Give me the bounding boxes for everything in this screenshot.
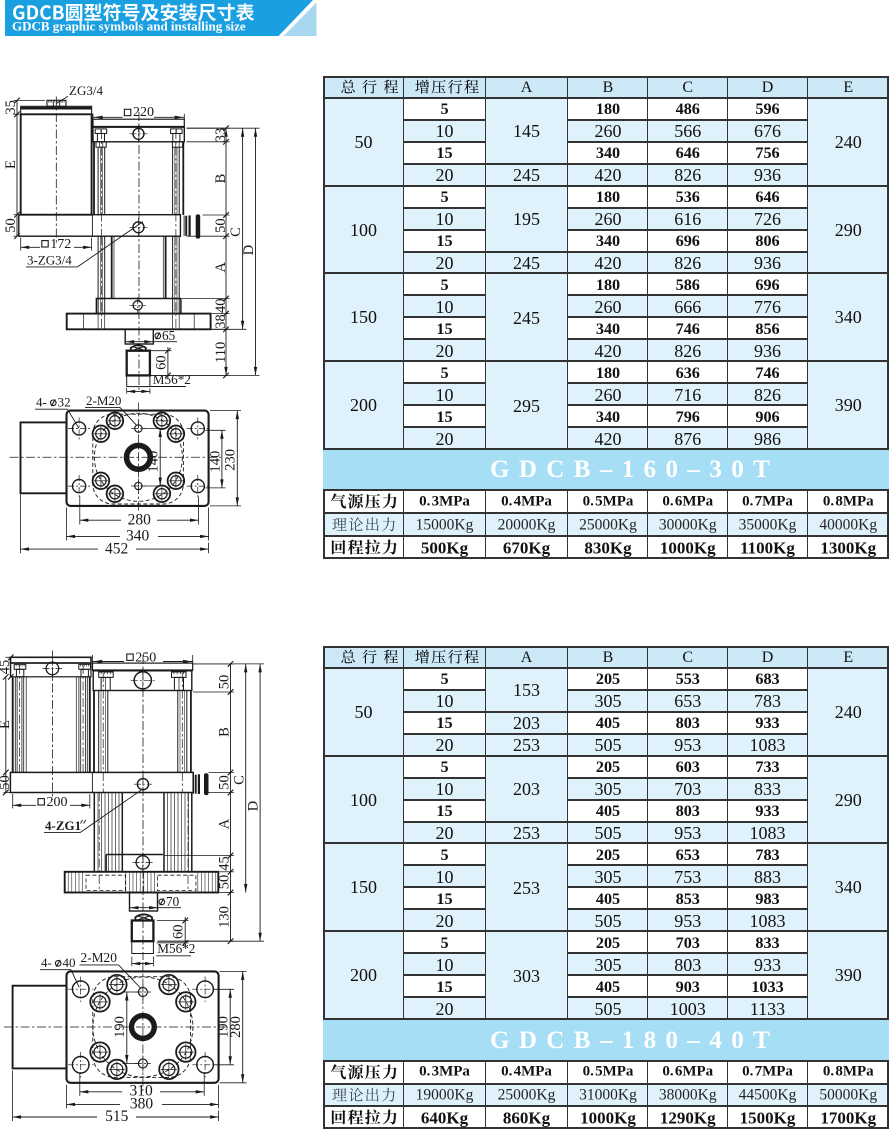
svg-text:E: E	[3, 160, 19, 169]
svg-text:50: 50	[213, 218, 229, 233]
svg-text:ZG3/4: ZG3/4	[69, 83, 103, 98]
svg-text:4-ZG1: 4-ZG1	[45, 818, 81, 833]
svg-text:50: 50	[217, 875, 233, 890]
svg-text:452: 452	[105, 540, 128, 557]
svg-text:230: 230	[223, 449, 239, 471]
svg-text:50: 50	[217, 775, 233, 790]
svg-text:250: 250	[135, 650, 156, 665]
svg-text:200: 200	[47, 795, 68, 810]
svg-text:32: 32	[58, 395, 71, 410]
svg-text:45: 45	[217, 856, 233, 871]
svg-text:3-ZG3/4: 3-ZG3/4	[27, 253, 72, 268]
svg-text:C: C	[228, 227, 244, 237]
svg-text:4-: 4-	[41, 955, 52, 970]
svg-text:M56*2: M56*2	[153, 372, 191, 387]
svg-text:380: 380	[130, 1095, 154, 1112]
svg-text:65: 65	[162, 328, 176, 343]
svg-text:35: 35	[3, 100, 19, 115]
svg-text:60: 60	[171, 925, 187, 940]
svg-text:70: 70	[166, 894, 180, 909]
svg-text:38: 38	[213, 314, 229, 329]
svg-text:130: 130	[217, 906, 233, 928]
svg-text:50: 50	[3, 218, 19, 233]
svg-text:515: 515	[105, 1108, 129, 1125]
svg-text:33: 33	[213, 128, 229, 143]
svg-text:140: 140	[146, 451, 162, 473]
svg-text:280: 280	[128, 511, 152, 528]
svg-text:4-: 4-	[36, 395, 47, 410]
svg-text:220: 220	[133, 105, 154, 120]
svg-text:340: 340	[126, 528, 150, 545]
svg-text:C: C	[231, 775, 247, 785]
svg-text:2-M20: 2-M20	[81, 950, 118, 965]
svg-text:D: D	[246, 801, 262, 811]
svg-text:40: 40	[63, 955, 76, 970]
svg-text:A: A	[217, 818, 233, 829]
svg-text:E: E	[0, 720, 13, 729]
svg-text:A: A	[213, 262, 229, 273]
svg-text:2-M20: 2-M20	[86, 393, 121, 408]
svg-text:45: 45	[0, 660, 13, 675]
svg-text:280: 280	[228, 1016, 244, 1038]
svg-text:40: 40	[213, 299, 229, 314]
svg-text:B: B	[217, 727, 233, 737]
svg-text:B: B	[213, 174, 229, 184]
svg-text:172: 172	[50, 237, 71, 252]
svg-text:D: D	[241, 245, 257, 255]
svg-text:140: 140	[207, 451, 223, 473]
svg-text:190: 190	[112, 1016, 128, 1038]
svg-text:60: 60	[153, 355, 169, 370]
svg-text:50: 50	[0, 775, 13, 790]
svg-text:50: 50	[217, 675, 233, 690]
svg-text:110: 110	[213, 342, 229, 363]
svg-text:M56*2: M56*2	[157, 941, 195, 956]
